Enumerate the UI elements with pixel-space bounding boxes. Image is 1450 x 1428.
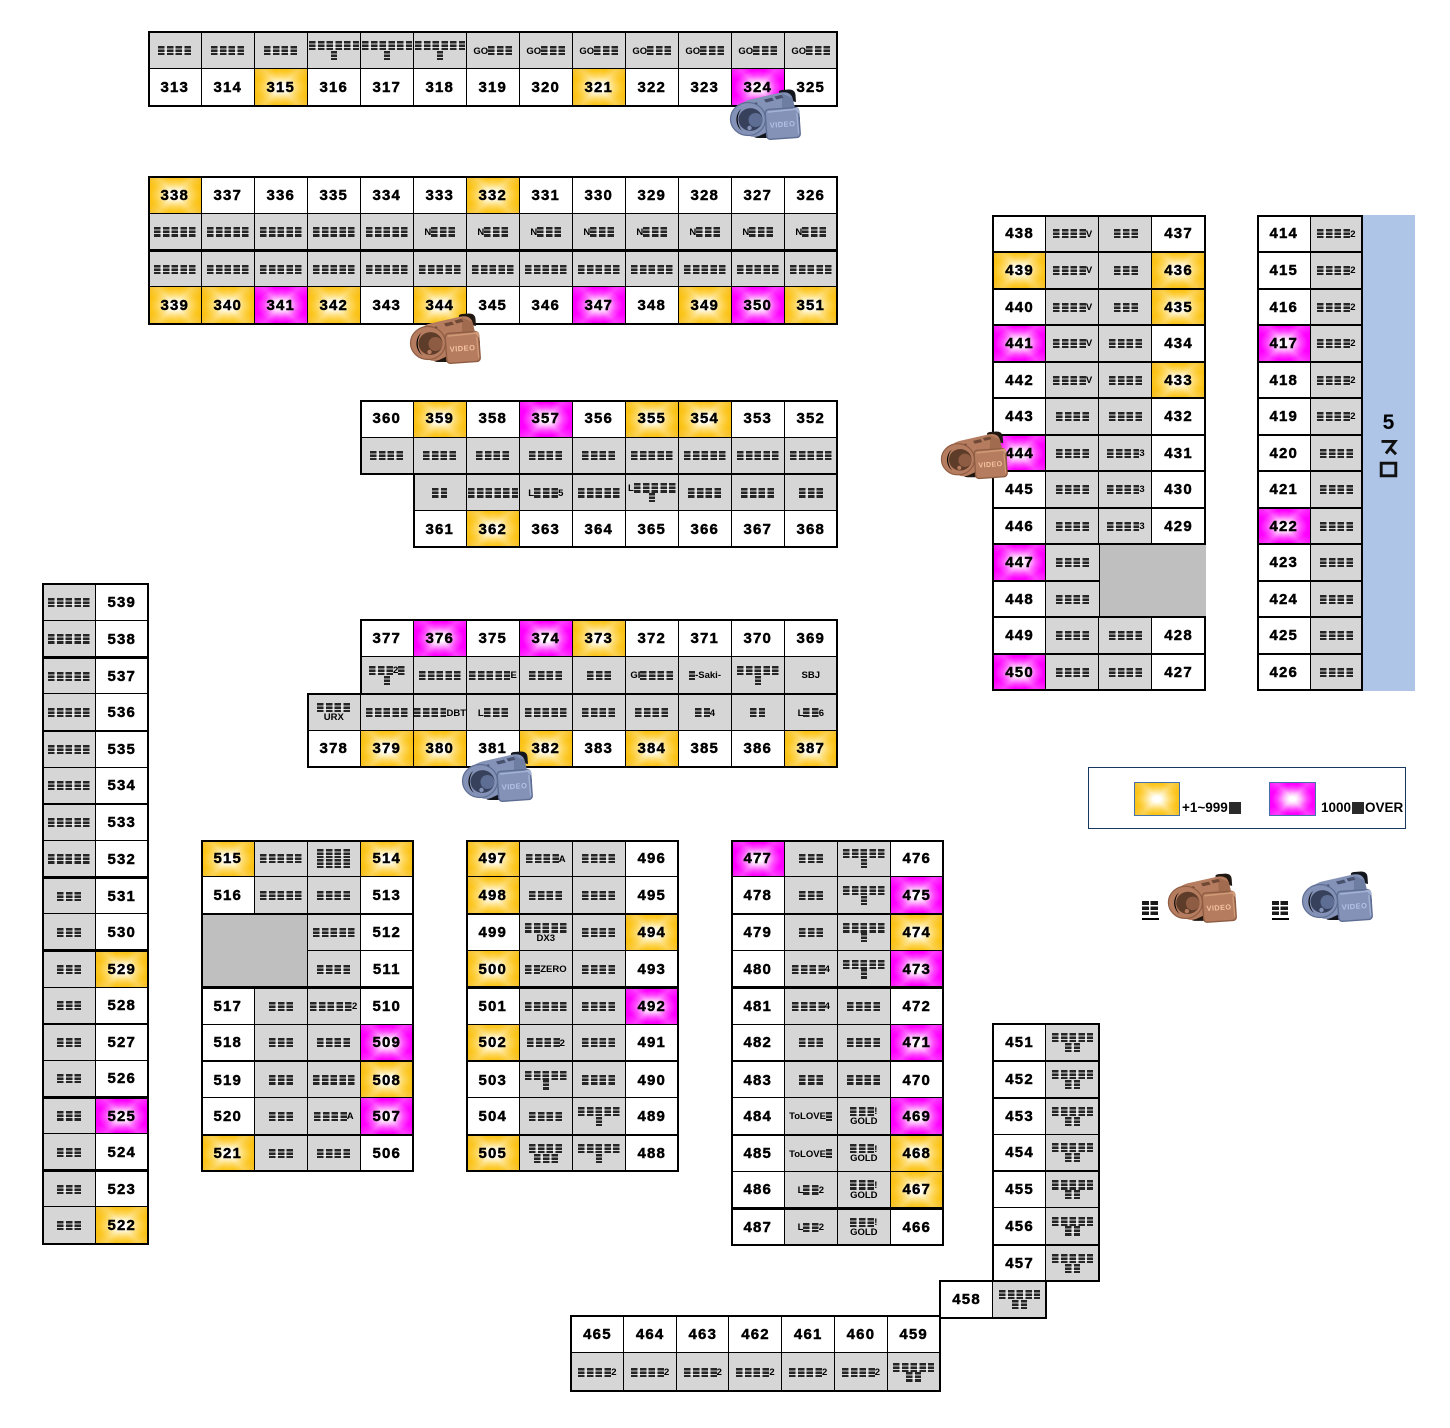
svg-text:VIDEO: VIDEO [1341,901,1367,912]
svg-text:VIDEO: VIDEO [449,343,475,354]
svg-text:VIDEO: VIDEO [501,781,527,792]
svg-text:VIDEO: VIDEO [1206,902,1231,913]
svg-text:VIDEO: VIDEO [978,460,1003,470]
svg-text:VIDEO: VIDEO [769,119,795,130]
